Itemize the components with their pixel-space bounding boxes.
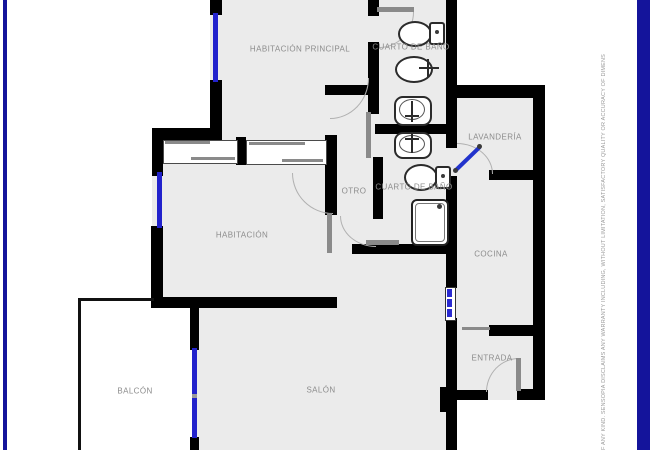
balcony-wall bbox=[78, 298, 81, 450]
window bbox=[445, 287, 456, 321]
door-leaf bbox=[462, 327, 490, 330]
wall bbox=[190, 308, 199, 350]
room-label-entrada: ENTRADA bbox=[471, 354, 512, 363]
wall bbox=[440, 387, 457, 412]
room-label-otro: OTRO bbox=[342, 187, 367, 196]
window-pane bbox=[447, 309, 452, 317]
sink-icon bbox=[394, 96, 434, 127]
room-label-salon: SALÓN bbox=[306, 386, 335, 395]
door-leaf bbox=[377, 7, 414, 12]
window bbox=[213, 13, 218, 82]
wall bbox=[190, 437, 199, 450]
door-leaf bbox=[327, 213, 332, 253]
wall bbox=[446, 318, 457, 450]
shower-icon bbox=[411, 199, 451, 248]
door-leaf bbox=[366, 112, 371, 158]
balcony-wall bbox=[78, 298, 154, 301]
floor-plan: HABITACIÓN PRINCIPAL CUARTO DE BAÑO LAVA… bbox=[0, 0, 650, 450]
door-leaf bbox=[516, 358, 521, 391]
door-leaf bbox=[249, 142, 305, 145]
bidet-icon bbox=[395, 56, 445, 84]
door-leaf bbox=[366, 240, 399, 245]
wall bbox=[151, 297, 337, 308]
door-leaf bbox=[191, 157, 235, 160]
wall bbox=[517, 389, 545, 400]
wall bbox=[533, 85, 545, 400]
room-label-cocina: COCINA bbox=[474, 250, 508, 259]
room-salon bbox=[197, 245, 456, 450]
wall bbox=[446, 85, 545, 98]
wall bbox=[456, 390, 488, 400]
wall bbox=[489, 325, 535, 336]
window-pane bbox=[447, 299, 452, 307]
window-pane bbox=[447, 289, 452, 297]
room-label-habitacion: HABITACIÓN bbox=[216, 231, 268, 240]
window bbox=[192, 398, 197, 438]
door-leaf bbox=[282, 159, 323, 162]
disclaimer-text: F ANY KIND. SENSOPIA DISCLAIMS ANY WARRA… bbox=[601, 0, 613, 450]
room-label-cuarto-de-bano-1: CUARTO DE BAÑO bbox=[372, 43, 449, 52]
room-label-habitacion-principal: HABITACIÓN PRINCIPAL bbox=[250, 45, 350, 54]
window bbox=[192, 348, 197, 395]
room-label-cuarto-de-bano-2: CUARTO DE BAÑO bbox=[375, 183, 452, 192]
window bbox=[157, 172, 162, 228]
door-leaf bbox=[165, 141, 210, 144]
wall bbox=[489, 170, 535, 180]
wall bbox=[368, 42, 379, 114]
wall bbox=[151, 226, 163, 303]
room-label-balcon: BALCÓN bbox=[117, 387, 152, 396]
door-hinge bbox=[477, 144, 482, 149]
sink-icon bbox=[394, 132, 434, 160]
frame-border-left bbox=[3, 0, 7, 450]
room-label-lavanderia: LAVANDERÍA bbox=[468, 133, 522, 142]
frame-border-right bbox=[637, 0, 650, 450]
wall bbox=[152, 138, 163, 176]
